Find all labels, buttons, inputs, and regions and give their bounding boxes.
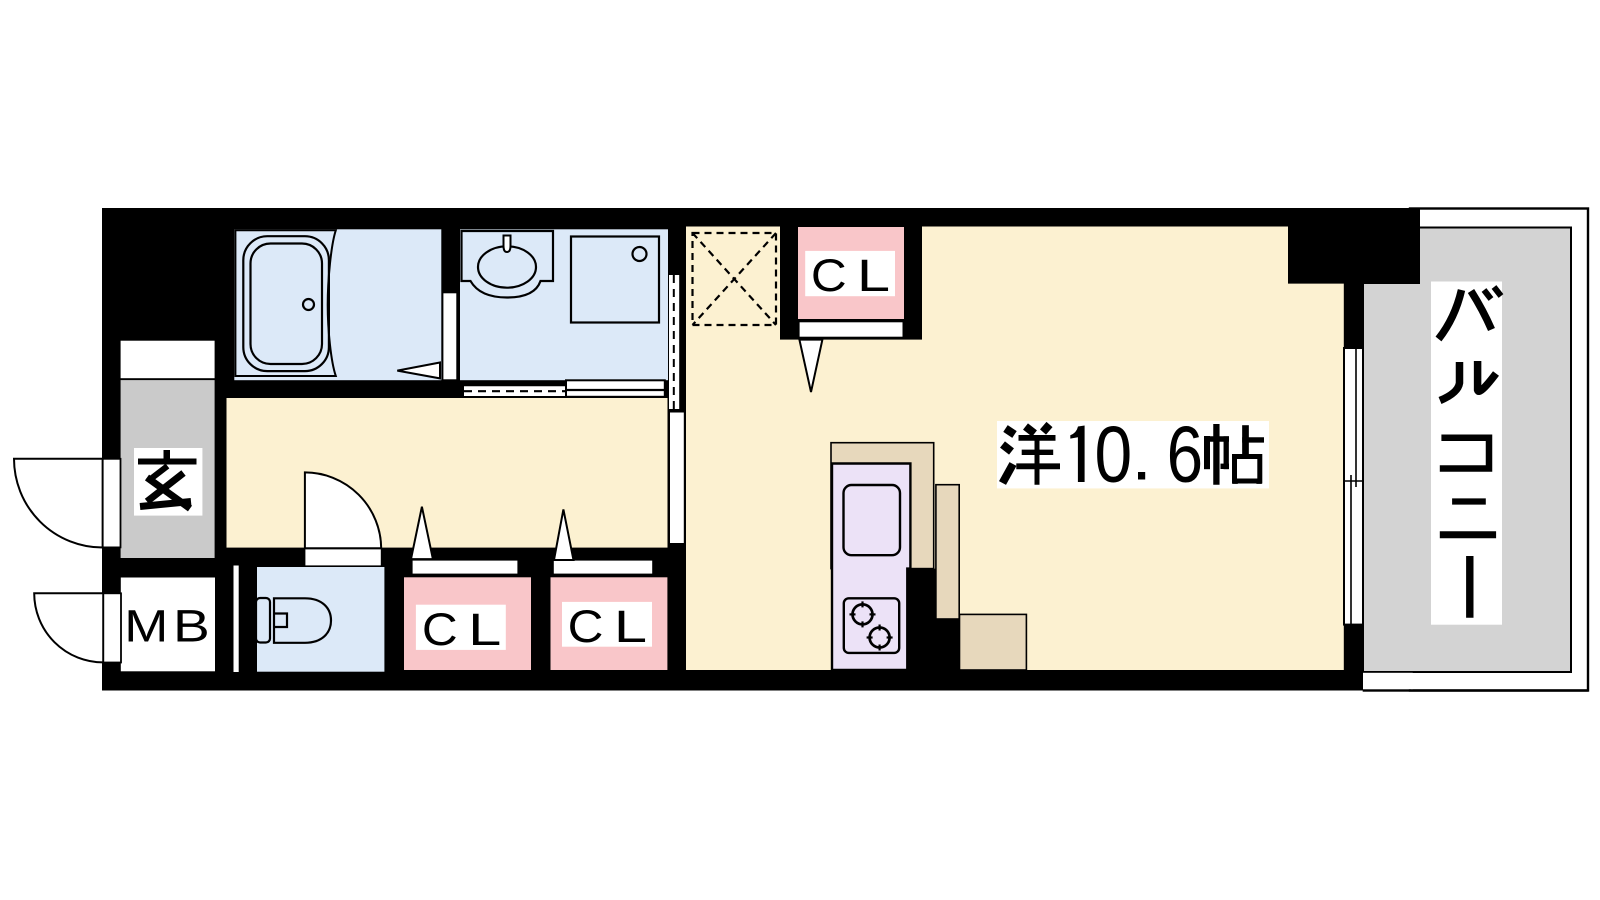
svg-text:M: M — [124, 601, 168, 652]
svg-text:L: L — [857, 251, 890, 302]
svg-text:L: L — [614, 602, 647, 653]
svg-text:6: 6 — [1167, 409, 1203, 499]
svg-text:L: L — [468, 605, 501, 656]
svg-text:C: C — [422, 605, 458, 656]
svg-text:B: B — [173, 600, 210, 651]
svg-text:C: C — [811, 251, 847, 302]
svg-text:C: C — [568, 602, 604, 653]
svg-text:0: 0 — [1095, 409, 1133, 499]
